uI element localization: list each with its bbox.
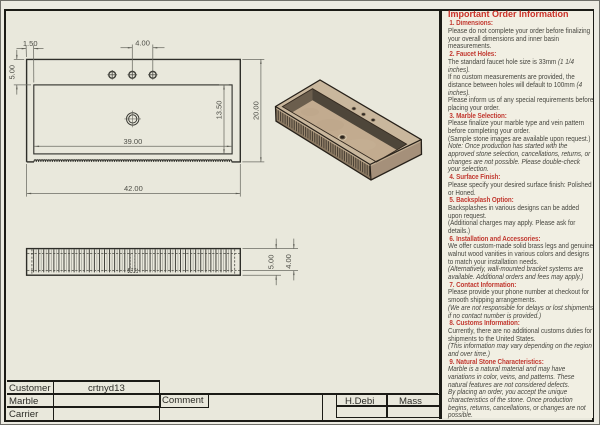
svg-text:39.00: 39.00	[124, 137, 143, 146]
svg-text:4.00: 4.00	[135, 38, 150, 47]
svg-text:5.00: 5.00	[7, 65, 16, 80]
svg-text:4.00: 4.00	[284, 254, 293, 269]
svg-text:13.50: 13.50	[215, 101, 224, 120]
svg-text:20.00: 20.00	[251, 101, 260, 120]
svg-text:1.50: 1.50	[23, 39, 38, 48]
svg-text:42.00: 42.00	[124, 184, 143, 193]
svg-text:5.00: 5.00	[267, 255, 276, 270]
